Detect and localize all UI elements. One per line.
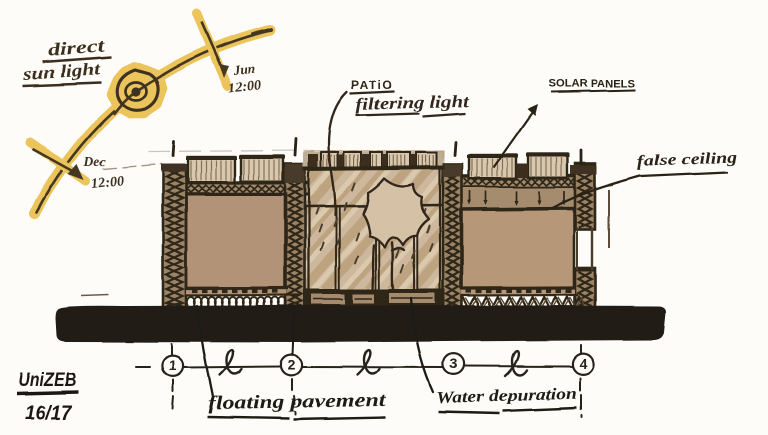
svg-text:3: 3 [450, 356, 458, 372]
svg-text:filtering light: filtering light [355, 91, 470, 114]
svg-text:floating pavement: floating pavement [208, 390, 386, 414]
svg-text:Jun: Jun [232, 61, 256, 78]
svg-text:16/17: 16/17 [25, 402, 73, 424]
svg-text:Dec: Dec [83, 154, 106, 169]
svg-text:2: 2 [287, 357, 295, 373]
svg-text:UniZEB: UniZEB [19, 370, 76, 391]
svg-text:SOLAR PANELS: SOLAR PANELS [548, 78, 635, 90]
svg-text:PATiO: PATiO [351, 78, 393, 92]
svg-text:1: 1 [169, 358, 177, 374]
svg-text:4: 4 [579, 356, 587, 372]
